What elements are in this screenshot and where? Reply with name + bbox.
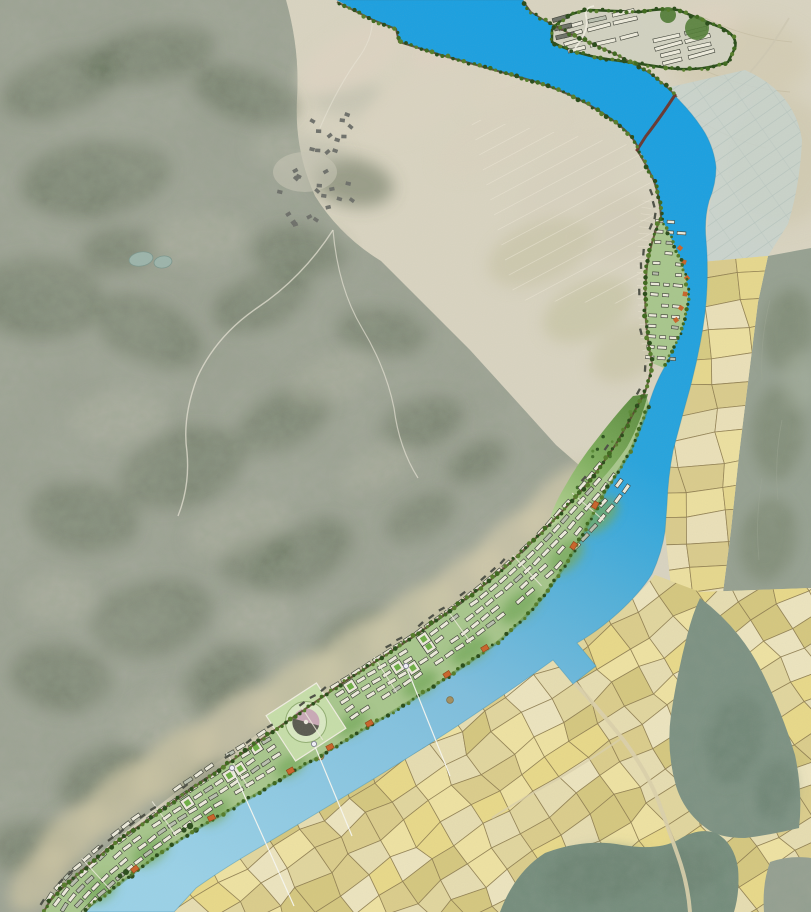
photo-grain-layer: [0, 0, 811, 912]
masterplan-aerial-map: Riverfront masterplan aerial map — reser…: [0, 0, 811, 912]
map-canvas: Riverfront masterplan aerial map — reser…: [0, 0, 811, 912]
photo-grain: [0, 0, 811, 912]
